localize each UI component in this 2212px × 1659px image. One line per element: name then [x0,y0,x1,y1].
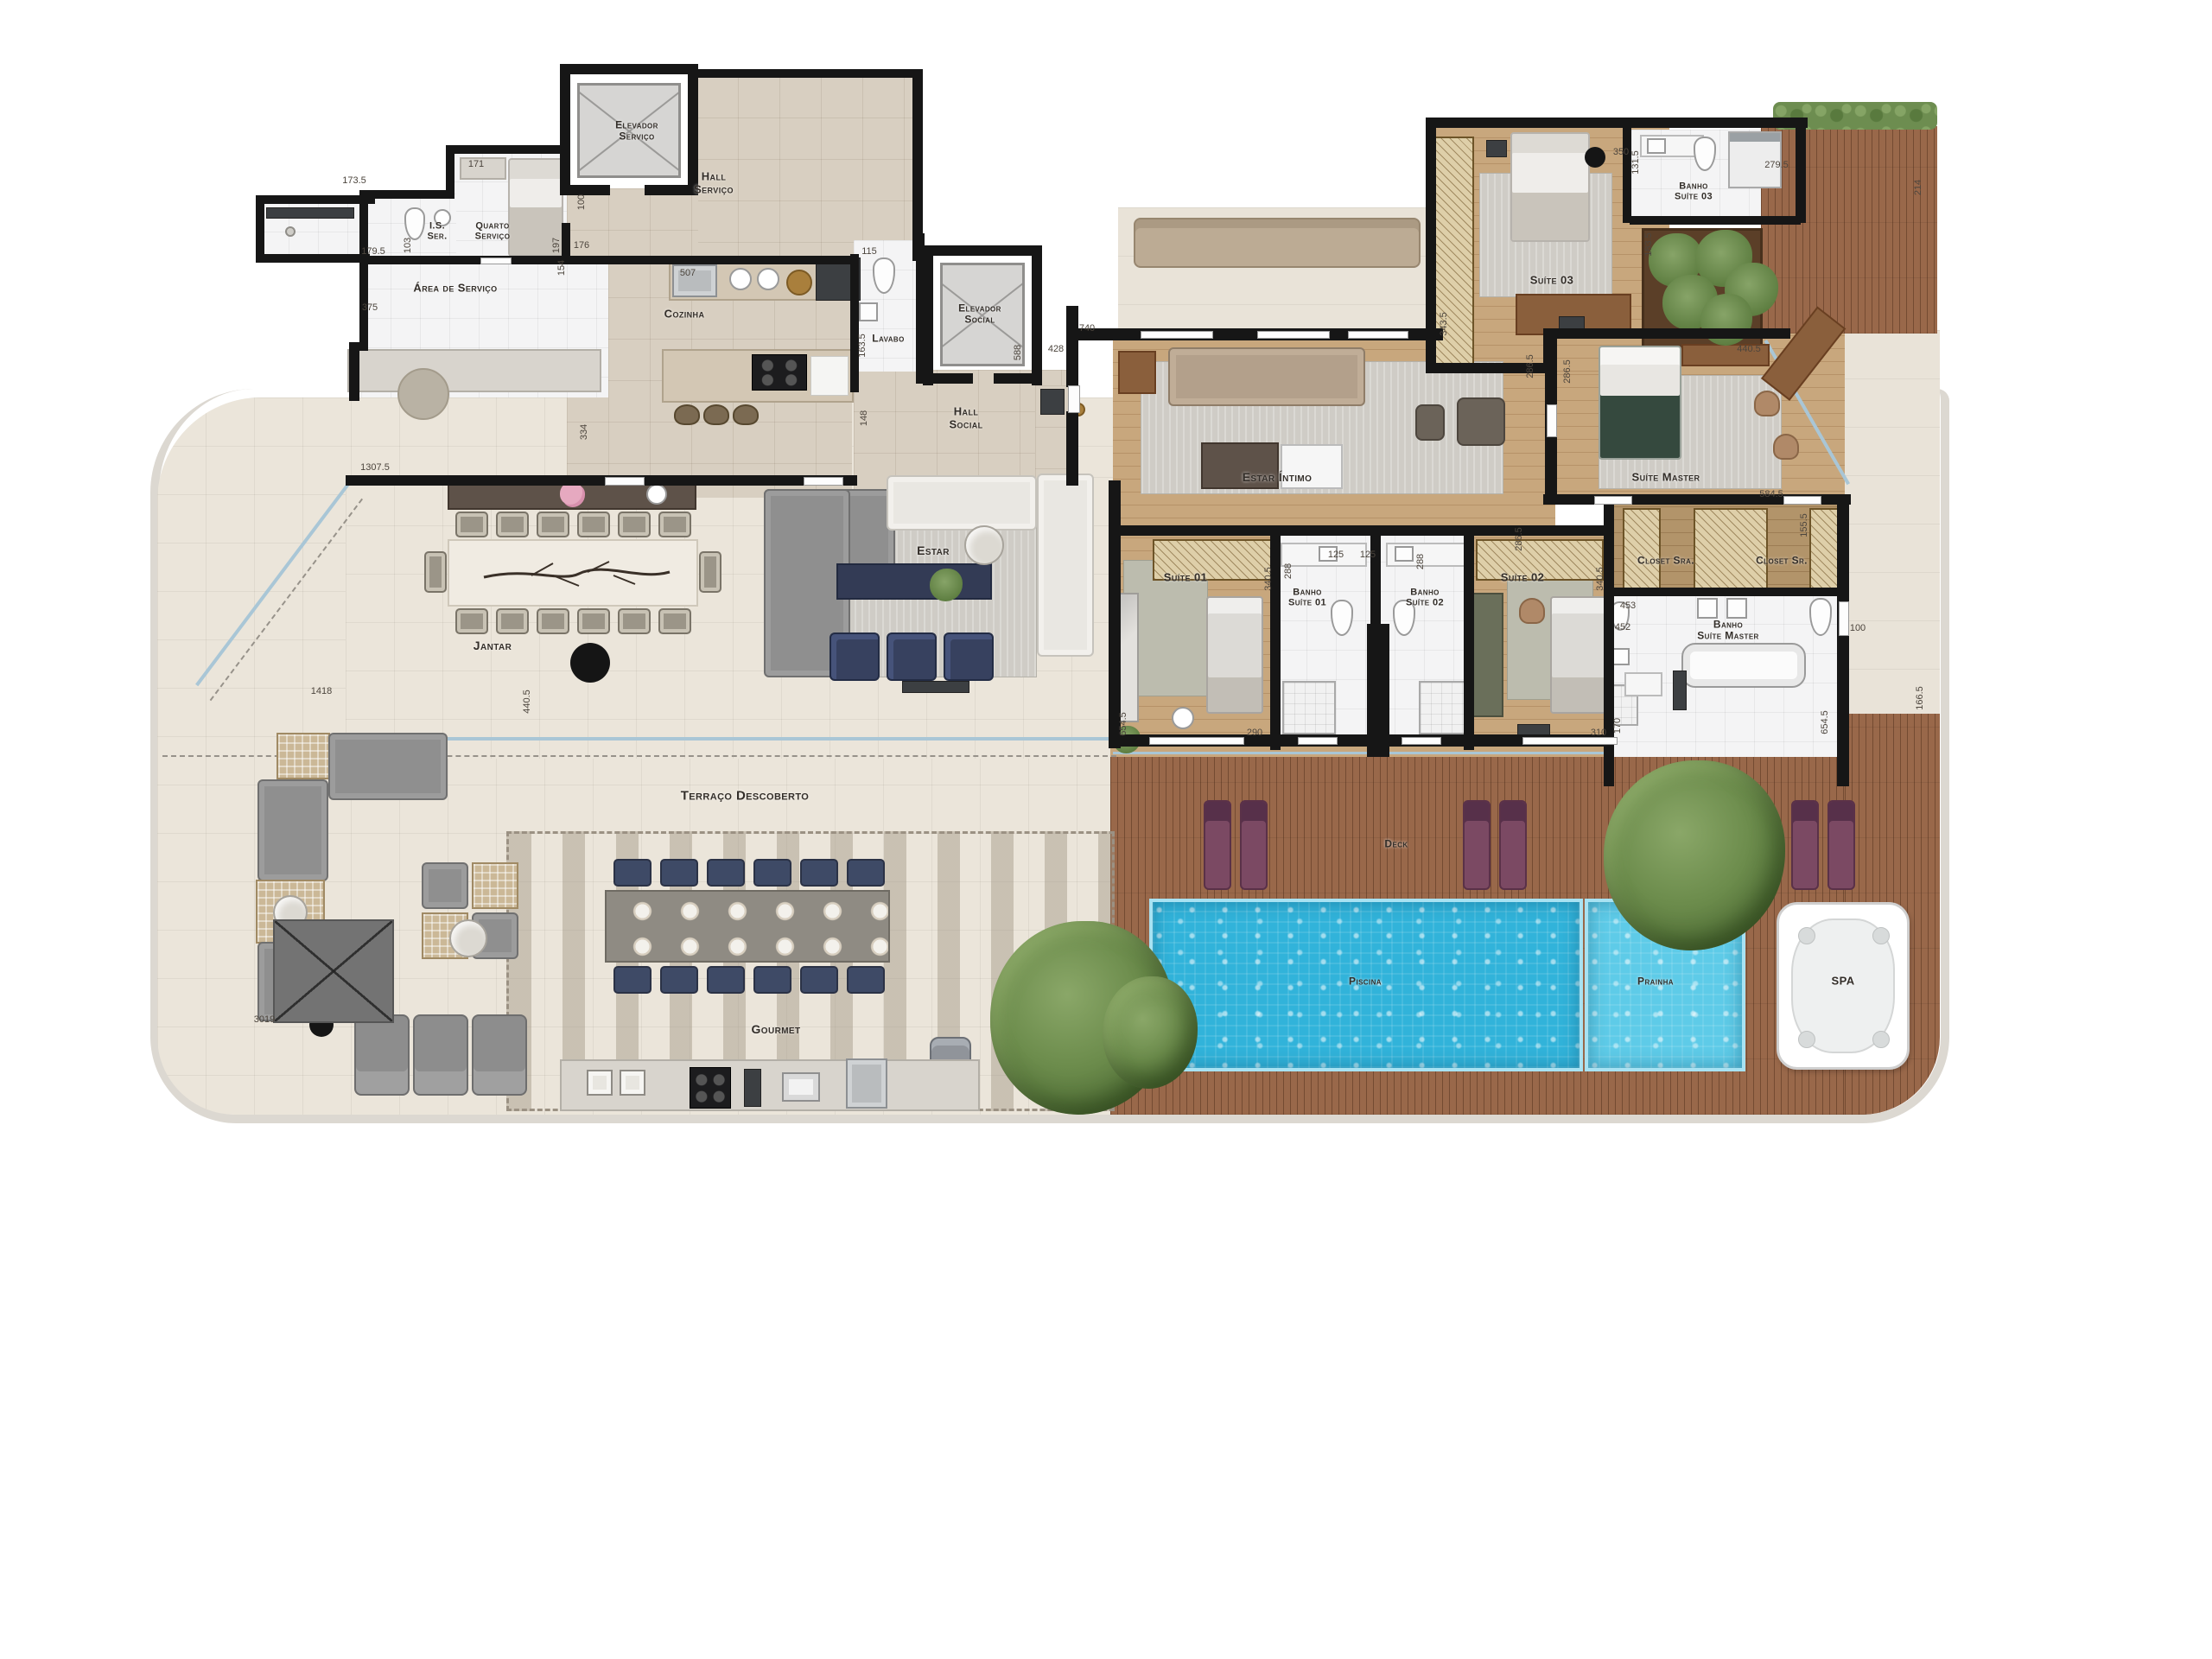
room-label-is-ser: I.S. Ser. [427,221,447,243]
dining-chair-top-1 [455,512,488,537]
plate-2 [757,268,779,290]
tv-console [902,681,969,693]
room-label-deck: Deck [1384,838,1408,849]
window [1402,737,1441,745]
chair-suite-02 [1519,598,1545,624]
coffee-table [964,525,1004,565]
lounger-1 [1204,800,1231,890]
counter-area-servico [347,349,601,392]
room-label-area-de-servico: Área de Serviço [413,283,497,296]
gourmet-chair-bottom-6 [847,966,885,994]
lounger-4 [1499,800,1527,890]
wall-segment [923,373,973,384]
wall-segment [560,64,698,74]
chair-master-1 [1754,391,1780,416]
window [1141,331,1213,339]
side-table-ei [1118,351,1156,394]
window [1839,601,1849,636]
dimension-label: 507 [680,268,696,278]
dining-chair-bottom-3 [537,608,569,634]
room-label-banho-suite-01: Banho Suíte 01 [1288,588,1326,609]
dimension-label: 179.5 [361,246,385,257]
dimension-label: 334 [579,424,589,440]
gourmet-cabinet [782,1072,820,1102]
sink-master-2 [1612,648,1630,665]
wall-segment [1270,532,1281,750]
wall-segment [923,245,933,385]
wall-segment [446,145,570,154]
gourmet-sink-2 [620,1070,645,1096]
terrace-armchair-3 [472,1014,527,1096]
desk-suite-02 [1471,593,1503,717]
dimension-label: 310 [1591,728,1606,738]
room-label-suite-master: Suíte Master [1632,472,1700,485]
window [1298,737,1338,745]
dimension-label: 453 [1620,601,1636,611]
dimension-label: 286.5 [1562,359,1573,384]
lounger-5 [1791,800,1819,890]
wall-segment [994,373,1042,384]
room-label-quarto-servico: Quarto Serviço [475,221,511,243]
wall-segment [1109,480,1121,748]
room-label-lavabo: Lavabo [872,333,904,344]
dimension-label: 350 [1613,147,1629,157]
wall-segment [361,256,570,264]
stool-1 [674,404,700,425]
vanity-master-3 [1624,672,1662,696]
hall-servico-floor [696,76,914,263]
window [480,257,512,264]
room-label-jantar: Jantar [474,639,512,653]
room-label-elevador-social: Elevador Social [958,303,1001,327]
dimension-label: 166.5 [1915,686,1925,710]
dimension-label: 1307.5 [360,462,390,473]
wall-segment [1109,525,1608,536]
room-label-piscina: Piscina [1349,976,1382,987]
window [1522,737,1618,745]
bed-suite-03 [1510,132,1590,242]
wall-segment [1796,128,1806,223]
dimension-label: 170 [1612,718,1623,734]
gourmet-chair-bottom-3 [707,966,745,994]
wall-segment [1066,306,1078,387]
room-label-closet-sra: Closet Sra. [1637,555,1694,566]
dimension-label: 288 [1283,563,1294,579]
wall-segment [1426,124,1436,373]
sideboard-plate [646,484,667,505]
wall-segment [696,69,921,78]
dining-chair-bottom-5 [618,608,651,634]
vanity-master-1 [1697,598,1718,619]
sink-lavabo [859,302,878,321]
wall-segment [560,145,570,195]
gourmet-chair-bottom-4 [753,966,791,994]
round-side-table [570,643,610,683]
sink-banho-03 [1647,138,1666,154]
lounger-3 [1463,800,1491,890]
window [1547,404,1557,437]
sofa-estar-intimo [1168,347,1365,406]
bathtub-master [1681,643,1806,688]
wall-segment [1032,245,1042,385]
dining-chair-top-4 [577,512,610,537]
wall-segment [346,475,857,486]
wall-segment [1837,501,1849,786]
armchair-navy-3 [944,632,994,681]
room-label-prainha: Prainha [1637,976,1674,987]
gourmet-chair-bottom-1 [613,966,652,994]
lounger-6 [1827,800,1855,890]
dimension-label: 148 [859,410,869,426]
dimension-label: 115 [861,246,877,257]
dimension-label: 340.5 [1263,567,1274,591]
lounger-2 [1240,800,1268,890]
dimension-label: 183.5 [1643,232,1654,257]
room-label-closet-sr: Closet Sr. [1756,555,1808,566]
glass-wall-suites [1113,752,1609,754]
shower-banho-01 [1282,681,1336,734]
armchair-navy-1 [829,632,880,681]
shower-door [1673,671,1687,710]
room-label-banho-suite-master: Banho Suíte Master [1697,620,1758,643]
table-branch-decor [449,541,700,608]
room-label-banho-suite-03: Banho Suíte 03 [1675,181,1713,203]
floor-plan: Elevador ServiçoHall ServiçoI.S. Ser.Qua… [0,0,2212,1659]
dimension-label: 3019 [254,1014,275,1025]
pan [786,270,812,296]
island-board [810,356,849,396]
gourmet-table [605,890,890,963]
room-label-banho-suite-02: Banho Suíte 02 [1406,588,1444,609]
dimension-label: 103 [403,238,413,253]
window [1348,331,1408,339]
wall-segment [923,245,1042,256]
dimension-label: 100 [576,194,587,210]
wall-segment [1630,216,1801,225]
entry-mat [1040,389,1065,415]
umbrella [273,919,394,1023]
wall-segment [565,256,854,264]
room-label-estar-intimo: Estar Íntimo [1243,471,1313,485]
dining-chair-bottom-4 [577,608,610,634]
gourmet-chair-bottom-5 [800,966,838,994]
gourmet-chair-top-6 [847,859,885,887]
wall-segment [1066,411,1078,486]
terrace-armchair-2 [413,1014,468,1096]
sofa-white [887,475,1037,531]
chaise-white [1037,474,1094,657]
dining-table [448,539,698,607]
room-label-elevador-servico: Elevador Serviço [615,120,658,143]
window [605,477,645,486]
bed-suite-01 [1206,596,1263,714]
outdoor-mat-1 [276,733,330,779]
ottoman-b [472,862,518,909]
ottoman-a [422,862,468,909]
dimension-label: 176 [574,240,589,251]
deck-top-right [1761,126,1937,334]
wall-segment [912,69,923,261]
dimension-label: 279.5 [1764,160,1789,170]
wall-segment [645,185,698,195]
plate-1 [729,268,752,290]
window [1149,737,1244,745]
wall-segment [1623,128,1631,223]
ceiling-light [1585,147,1605,168]
drain-is [285,226,296,237]
wall-segment [256,254,370,263]
armchair-ei [1457,397,1505,446]
wall-segment [1426,118,1678,128]
dimension-label: 125 [1328,550,1344,560]
wall-segment [349,342,359,401]
outdoor-sofa-2 [257,779,328,881]
dimension-label: 286.5 [1514,527,1524,551]
dimension-label: 440.5 [522,690,532,714]
stool-2 [703,404,729,425]
wall-segment [256,195,264,263]
dimension-label: 584.5 [1759,489,1783,499]
gourmet-cooktop [690,1067,731,1109]
wall-segment [1370,532,1381,626]
dimension-label: 654.5 [1820,710,1830,734]
dimension-label: 173.5 [342,175,366,186]
dimension-label: 288 [1415,554,1426,569]
room-label-cozinha: Cozinha [664,308,705,321]
gourmet-chair-top-1 [613,859,652,887]
dining-chair-top-5 [618,512,651,537]
cooktop [752,354,807,391]
dimension-label: 154 [556,260,567,276]
window [1783,496,1821,505]
wall-segment [1464,532,1474,750]
dimension-label: 125 [1360,550,1376,560]
bed-master [1599,346,1681,460]
dining-chair-bottom-6 [658,608,691,634]
dimension-label: 155.5 [1799,513,1809,537]
dining-chair-right [699,551,721,593]
dimension-label: 440.5 [1737,344,1761,354]
gourmet-chair-bottom-2 [660,966,698,994]
wall-segment [446,145,454,197]
dining-chair-bottom-2 [496,608,529,634]
dimension-label: 452 [1615,622,1630,632]
armchair-navy-2 [887,632,937,681]
dimension-label: 286.5 [1525,354,1535,378]
gourmet-chair-top-5 [800,859,838,887]
dining-chair-left [424,551,447,593]
gourmet-chair-top-4 [753,859,791,887]
glass-wall-social [346,737,1115,741]
outdoor-tray-2 [449,919,487,957]
console-navy [836,563,992,600]
dimension-label: 171 [468,159,484,169]
wardrobe-closet-sra [1623,508,1661,591]
wall-segment [1607,588,1847,596]
gourmet-chair-top-3 [707,859,745,887]
room-label-terraco-descoberto: Terraço Descoberto [681,790,810,804]
room-label-hall-social: Hall Social [949,405,982,430]
dimension-label: 1418 [311,686,332,696]
wall-segment [1668,118,1808,128]
ledge-bench [1134,218,1421,268]
window [804,477,843,486]
dimension-label: 588 [1013,345,1023,360]
wall-segment [850,254,859,392]
dimension-label: 131.5 [1630,150,1641,175]
dimension-label: 197 [551,238,562,253]
room-label-estar: Estar [917,544,950,558]
wall-segment [366,190,454,199]
room-label-suite-03: Suíte 03 [1530,275,1573,288]
bench-is [266,207,354,219]
window [1257,331,1330,339]
dining-chair-bottom-1 [455,608,488,634]
stool-3 [733,404,759,425]
room-label-suite-01: Suíte 01 [1164,572,1207,585]
sink-banho-02 [1395,546,1414,562]
wall-frame [1486,140,1507,157]
dining-chair-top-3 [537,512,569,537]
wall-segment [256,195,375,204]
window [1594,496,1632,505]
window [1068,385,1080,413]
gourmet-column [744,1069,761,1107]
dimension-label: 343.5 [1439,312,1449,336]
room-label-suite-02: Suíte 02 [1501,572,1544,585]
dimension-label: 340.5 [1595,567,1605,591]
gourmet-appliance [846,1058,887,1109]
dimension-label: 214 [1913,180,1923,195]
room-label-spa: SPA [1832,976,1855,988]
pouf-suite-01 [1172,707,1194,729]
dimension-label: 290 [1247,728,1262,738]
dimension-label: 428 [1048,344,1064,354]
dimension-label: 163.5 [857,334,868,358]
wall-segment [1543,328,1790,339]
dining-chair-top-2 [496,512,529,537]
dimension-label: 654.5 [1118,712,1128,736]
vanity-master-2 [1726,598,1747,619]
dimension-label: 375 [362,302,378,313]
gourmet-chair-top-2 [660,859,698,887]
dining-chair-top-6 [658,512,691,537]
dimension-label: 740 [1079,323,1095,334]
wardrobe-closet-mid [1694,508,1768,591]
side-stone-strip [1845,330,1940,719]
gourmet-sink-1 [587,1070,613,1096]
rug-area-servico [397,368,449,420]
room-label-hall-servico: Hall Serviço [694,170,734,195]
dimension-label: 100 [1850,623,1866,633]
room-label-gourmet: Gourmet [751,1023,800,1037]
terrace-armchair-1 [354,1014,410,1096]
chair-master-2 [1773,434,1799,460]
bed-suite-02 [1550,596,1607,714]
outdoor-sofa-1 [328,733,448,800]
ottoman-ei [1415,404,1445,441]
